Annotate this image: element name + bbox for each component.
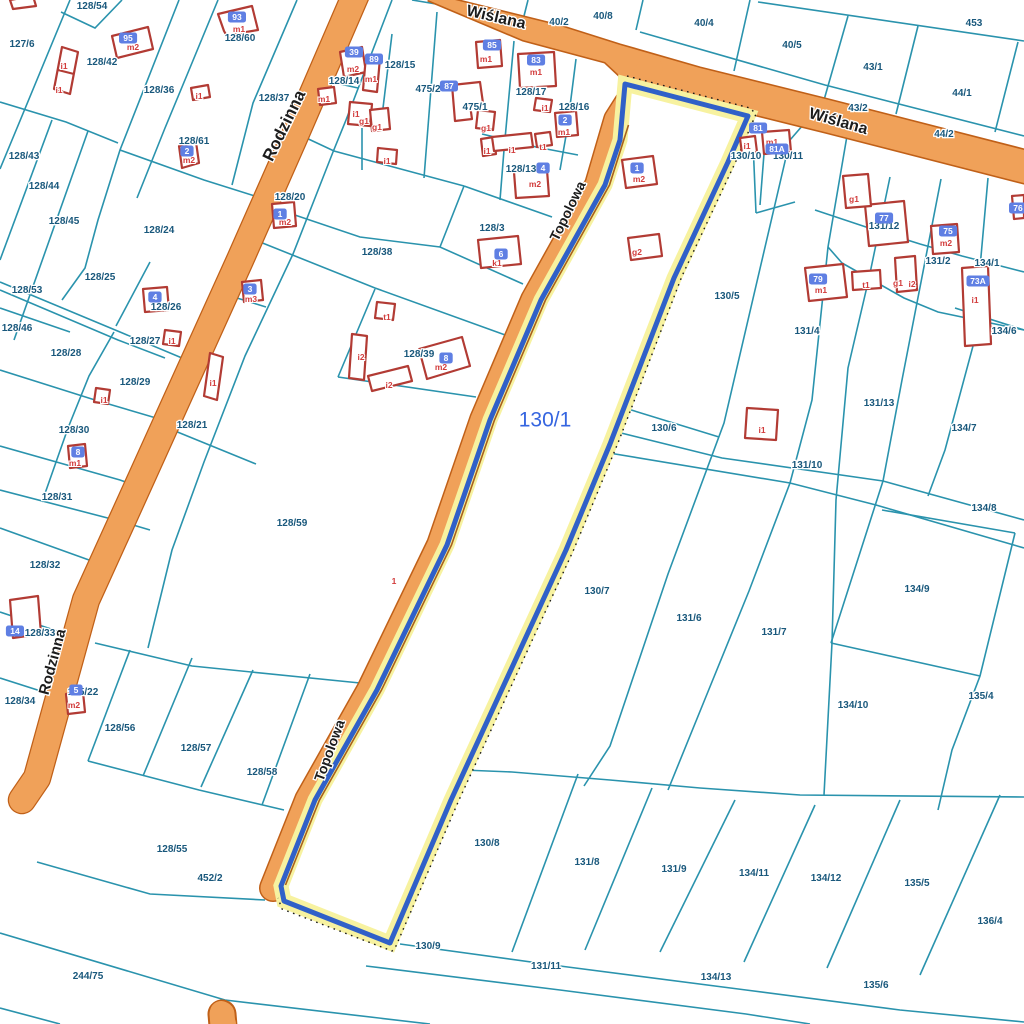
svg-text:6: 6 (499, 249, 504, 259)
svg-text:i1: i1 (758, 425, 765, 435)
svg-text:m1: m1 (233, 24, 246, 34)
svg-text:m1: m1 (480, 54, 493, 64)
svg-text:128/28: 128/28 (51, 348, 82, 359)
svg-text:40/8: 40/8 (593, 11, 613, 22)
svg-text:g1: g1 (849, 194, 859, 204)
svg-text:134/9: 134/9 (904, 584, 929, 595)
svg-text:m1: m1 (558, 127, 571, 137)
svg-text:128/43: 128/43 (9, 151, 40, 162)
svg-text:131/2: 131/2 (925, 256, 950, 267)
svg-text:134/10: 134/10 (838, 700, 869, 711)
svg-text:134/1: 134/1 (974, 258, 999, 269)
svg-text:i1: i1 (508, 145, 515, 155)
svg-text:i1: i1 (195, 91, 202, 101)
svg-text:i1: i1 (383, 156, 390, 166)
svg-text:128/53: 128/53 (12, 285, 43, 296)
svg-text:m1: m1 (530, 67, 543, 77)
svg-text:75: 75 (943, 226, 953, 236)
svg-text:t1: t1 (862, 280, 870, 290)
svg-text:130/7: 130/7 (584, 586, 609, 597)
svg-text:87: 87 (444, 81, 454, 91)
svg-text:128/30: 128/30 (59, 425, 90, 436)
svg-text:m2: m2 (940, 238, 953, 248)
svg-text:g1: g1 (481, 123, 491, 133)
svg-text:128/45: 128/45 (49, 216, 80, 227)
svg-text:2: 2 (185, 146, 190, 156)
svg-text:134/8: 134/8 (971, 503, 996, 514)
svg-text:130/1: 130/1 (519, 409, 572, 432)
svg-text:134/12: 134/12 (811, 873, 842, 884)
svg-text:83: 83 (531, 55, 541, 65)
svg-text:1: 1 (278, 209, 283, 219)
svg-text:131/7: 131/7 (761, 627, 786, 638)
svg-text:1: 1 (392, 576, 397, 586)
svg-text:i1: i1 (743, 141, 750, 151)
svg-text:128/59: 128/59 (277, 518, 308, 529)
svg-text:14: 14 (10, 626, 20, 636)
svg-text:128/32: 128/32 (30, 560, 61, 571)
svg-text:128/31: 128/31 (42, 492, 73, 503)
svg-text:135/6: 135/6 (863, 980, 888, 991)
svg-text:128/56: 128/56 (105, 723, 136, 734)
svg-text:128/20: 128/20 (275, 192, 306, 203)
svg-text:i1: i1 (541, 103, 548, 113)
svg-text:131/11: 131/11 (531, 961, 561, 972)
svg-text:128/60: 128/60 (225, 33, 256, 44)
svg-text:475/2: 475/2 (415, 84, 440, 95)
svg-text:i1: i1 (60, 61, 67, 71)
svg-text:g1: g1 (372, 122, 382, 132)
svg-text:m2: m2 (68, 700, 81, 710)
svg-text:2: 2 (563, 115, 568, 125)
svg-text:79: 79 (813, 274, 823, 284)
svg-text:m1: m1 (365, 74, 378, 84)
svg-text:128/61: 128/61 (179, 136, 210, 147)
svg-text:73A: 73A (970, 276, 986, 286)
svg-text:134/6: 134/6 (991, 326, 1016, 337)
svg-text:44/2: 44/2 (934, 129, 954, 140)
svg-text:135/4: 135/4 (968, 691, 993, 702)
svg-text:130/9: 130/9 (415, 941, 440, 952)
svg-text:128/46: 128/46 (2, 323, 33, 334)
svg-text:128/25: 128/25 (85, 272, 116, 283)
svg-text:128/34: 128/34 (5, 696, 36, 707)
svg-text:93: 93 (232, 12, 242, 22)
svg-text:i2: i2 (385, 380, 392, 390)
svg-text:8: 8 (76, 447, 81, 457)
svg-text:128/44: 128/44 (29, 181, 60, 192)
svg-text:40/2: 40/2 (549, 17, 569, 28)
svg-text:136/4: 136/4 (977, 916, 1002, 927)
svg-text:i2: i2 (908, 279, 915, 289)
svg-text:m1: m1 (69, 458, 82, 468)
svg-text:131/9: 131/9 (661, 864, 686, 875)
svg-text:i1: i1 (209, 378, 216, 388)
svg-text:128/24: 128/24 (144, 225, 175, 236)
svg-text:131/8: 131/8 (574, 857, 599, 868)
svg-text:453: 453 (966, 18, 983, 29)
svg-text:135/5: 135/5 (904, 878, 929, 889)
svg-text:m2: m2 (347, 64, 360, 74)
svg-text:4: 4 (541, 163, 546, 173)
svg-text:128/17: 128/17 (516, 87, 547, 98)
svg-text:128/55: 128/55 (157, 844, 188, 855)
svg-text:130/5: 130/5 (714, 291, 739, 302)
svg-text:128/39: 128/39 (404, 349, 435, 360)
svg-text:i1: i1 (168, 336, 175, 346)
svg-text:3: 3 (248, 284, 253, 294)
svg-text:43/1: 43/1 (863, 62, 883, 73)
svg-text:128/21: 128/21 (177, 420, 208, 431)
svg-text:g2: g2 (632, 247, 642, 257)
svg-text:134/13: 134/13 (701, 972, 732, 983)
svg-text:131/13: 131/13 (864, 398, 895, 409)
svg-text:95: 95 (123, 33, 133, 43)
svg-text:131/10: 131/10 (792, 460, 823, 471)
svg-text:128/58: 128/58 (247, 767, 278, 778)
svg-text:40/4: 40/4 (694, 18, 714, 29)
svg-text:g1: g1 (893, 278, 903, 288)
svg-text:44/1: 44/1 (952, 88, 972, 99)
svg-text:i2: i2 (357, 352, 364, 362)
svg-text:128/26: 128/26 (151, 302, 182, 313)
svg-text:1: 1 (635, 163, 640, 173)
svg-text:81A: 81A (769, 144, 785, 154)
svg-text:i1: i1 (55, 85, 62, 95)
svg-text:128/13: 128/13 (506, 164, 537, 175)
svg-text:85: 85 (487, 40, 497, 50)
svg-text:128/15: 128/15 (385, 60, 416, 71)
svg-text:130/10: 130/10 (731, 151, 762, 162)
svg-text:128/29: 128/29 (120, 377, 151, 388)
svg-text:128/38: 128/38 (362, 247, 393, 258)
svg-text:128/3: 128/3 (479, 223, 504, 234)
svg-text:t1: t1 (539, 142, 547, 152)
svg-text:127/6: 127/6 (9, 39, 34, 50)
svg-text:m1: m1 (815, 285, 828, 295)
svg-text:128/14: 128/14 (329, 76, 360, 87)
svg-text:452/2: 452/2 (197, 873, 222, 884)
svg-text:39: 39 (349, 47, 359, 57)
svg-text:m2: m2 (529, 179, 542, 189)
svg-text:8: 8 (444, 353, 449, 363)
svg-text:g1: g1 (359, 116, 369, 126)
svg-text:4: 4 (153, 292, 158, 302)
svg-text:134/11: 134/11 (739, 868, 769, 879)
svg-text:128/42: 128/42 (87, 57, 118, 68)
svg-text:81: 81 (753, 123, 763, 133)
svg-text:i1: i1 (483, 146, 490, 156)
svg-text:5: 5 (74, 685, 79, 695)
svg-text:m2: m2 (633, 174, 646, 184)
svg-text:89: 89 (369, 54, 379, 64)
svg-text:43/2: 43/2 (848, 103, 868, 114)
svg-text:i1: i1 (971, 295, 978, 305)
svg-text:m3: m3 (245, 294, 258, 304)
svg-text:130/8: 130/8 (474, 838, 499, 849)
svg-text:76: 76 (1013, 203, 1023, 213)
svg-text:128/27: 128/27 (130, 336, 161, 347)
svg-text:244/75: 244/75 (73, 971, 104, 982)
svg-text:128/16: 128/16 (559, 102, 590, 113)
svg-text:130/6: 130/6 (651, 423, 676, 434)
svg-text:t1: t1 (383, 312, 391, 322)
svg-text:128/54: 128/54 (77, 1, 108, 12)
svg-text:131/4: 131/4 (794, 326, 819, 337)
svg-text:128/57: 128/57 (181, 743, 212, 754)
svg-text:i1: i1 (100, 395, 107, 405)
svg-text:475/1: 475/1 (462, 102, 487, 113)
svg-text:131/6: 131/6 (676, 613, 701, 624)
svg-text:77: 77 (879, 213, 889, 223)
svg-text:40/5: 40/5 (782, 40, 802, 51)
svg-text:134/7: 134/7 (951, 423, 976, 434)
svg-text:m1: m1 (318, 94, 331, 104)
svg-text:128/36: 128/36 (144, 85, 175, 96)
